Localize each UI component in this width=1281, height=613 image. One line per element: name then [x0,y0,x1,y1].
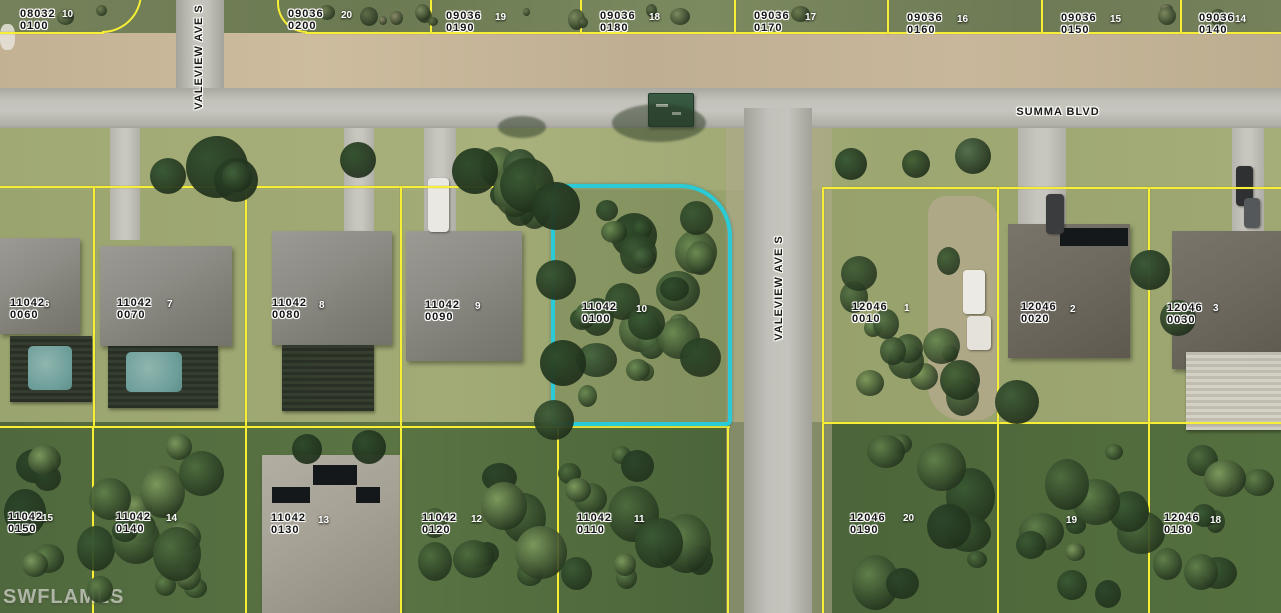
parcel-lot-number: 19 [495,13,506,23]
tree [967,551,987,568]
tree [923,328,960,364]
parcel-line [557,428,559,613]
street-label: SUMMA BLVD [1016,106,1099,118]
parcel-line [0,32,104,34]
tree [1057,570,1087,600]
tree [686,241,715,275]
tree [28,445,61,475]
house-roof [100,246,232,346]
parcel-lot-number: 15 [1110,15,1121,25]
vehicle-gray-car [1244,198,1260,228]
parcel-lot-number: 12 [471,515,482,525]
house-roof [1172,231,1281,369]
parcel-label: 11042 0130 [271,512,306,536]
parcel-label: 08032 0100 [20,8,56,32]
parcel-label: 11042 0150 [8,511,43,535]
parcel-lot-number: 8 [319,301,325,311]
parcel-line [400,428,402,613]
screened-lanai [282,345,374,411]
swimming-pool [28,346,72,390]
parcel-label: 12046 0010 [852,301,888,325]
parcel-line [245,428,247,613]
parcel-lot-number: 9 [475,302,481,312]
parcel-line [727,426,729,613]
tree [390,11,403,25]
tree [534,400,574,440]
tree [150,158,186,194]
parcel-line [822,187,824,613]
parcel-label: 11042 0090 [425,299,460,323]
tree [418,542,452,581]
parcel-lot-number: 20 [903,514,914,524]
tree [1065,543,1085,561]
tree [578,385,597,407]
tree [680,338,721,377]
parcel-line [1180,0,1182,33]
house-roof [406,231,522,361]
parcel-lot-number: 1 [904,304,910,314]
vehicle-white-truck [963,270,985,314]
tree [565,478,591,502]
parcel-lot-number: 2 [1070,305,1076,315]
tree [1105,444,1123,460]
parcel-label: 11042 0110 [577,512,612,536]
tree [153,527,201,581]
tree [626,359,650,381]
tree [1045,459,1089,510]
tree-shadow [498,116,546,138]
tree [621,450,654,482]
tree [841,256,877,291]
parcel-lot-number: 11 [634,515,645,525]
tree [96,5,107,16]
tree [222,162,252,192]
parcel-label: 09036 0190 [446,10,482,34]
parcel-lot-number: 18 [1210,516,1221,526]
parcel-label: 11042 0140 [116,511,151,535]
tree [340,142,376,178]
parcel-lot-number: 13 [318,516,329,526]
tree [87,576,113,603]
light-ground-patch [0,24,15,50]
aerial-map: SWFLAMLS VALEVIEW AVE SSUMMA BLVDVALEVIE… [0,0,1281,613]
tree [867,435,905,468]
parcel-label: 11042 0070 [117,297,152,321]
parcel-line [93,186,95,428]
tree [1158,7,1176,25]
parcel-line [400,186,402,428]
tree [880,337,906,365]
street-label: VALEVIEW AVE S [193,4,205,109]
tree [886,568,919,599]
tree [515,526,567,579]
parcel-label: 11042 0080 [272,297,307,321]
pool-screen-enclosure [1186,352,1281,430]
parcel-lot-number: 20 [341,11,352,21]
parcel-lot-number: 14 [166,514,177,524]
tree [614,553,636,576]
tree [523,8,530,16]
swimming-pool [126,352,182,392]
parcel-lot-number: 17 [805,13,816,23]
tree [856,370,884,396]
parcel-label: 12046 0180 [1164,512,1200,536]
parcel-label: 11042 0100 [582,301,617,325]
tree [1130,250,1170,290]
parcel-label: 09036 0150 [1061,12,1097,36]
roof-shadow [272,487,310,503]
parcel-lot-number: 15 [42,514,53,524]
parcel-line [887,0,889,33]
parcel-line [823,422,1281,424]
vehicle-white-car [967,316,991,350]
tree [532,182,580,230]
parcel-lot-number: 7 [167,300,173,310]
tree [561,557,592,590]
roof-shadow [1060,228,1128,246]
tree [937,247,960,275]
parcel-label: 09036 0200 [288,8,324,32]
tree [379,16,387,25]
roof-shadow [313,465,357,485]
tree [635,518,683,568]
tree [660,277,689,301]
tree [1095,580,1121,608]
tree [352,430,386,464]
tree [179,451,224,496]
tree [670,8,690,25]
tree [22,552,48,577]
driveway [110,128,140,240]
tree [1184,554,1218,590]
vehicle-dark-van [1046,194,1064,234]
parcel-label: 11042 0120 [422,512,457,536]
parcel-lot-number: 10 [62,10,73,20]
tree [77,526,115,571]
tree [1243,469,1274,496]
parcel-lot-number: 16 [957,15,968,25]
parcel-lot-number: 6 [44,300,50,310]
parcel-line [245,186,247,428]
tree [680,201,713,235]
house-roof [272,231,392,345]
tree [1153,548,1182,580]
parcel-lot-number: 3 [1213,304,1219,314]
tree [578,17,588,28]
parcel-label: 09036 0180 [600,10,636,34]
parcel-label: 09036 0170 [754,10,790,34]
tree [835,148,867,180]
tree [360,7,378,26]
tree [917,443,966,491]
parcel-line [823,187,1281,189]
tree [955,138,991,174]
tree [536,260,576,300]
tree [940,360,980,400]
parcel-label: 09036 0160 [907,12,943,36]
parcel-lot-number: 14 [1235,15,1246,25]
tree [540,340,586,386]
tree [452,148,498,194]
tree [1016,531,1046,559]
parcel-label: 12046 0020 [1021,301,1057,325]
tree [902,150,930,178]
parcel-line [1041,0,1043,33]
parcel-lot-number: 10 [636,305,647,315]
tree [1204,460,1246,497]
tree [927,504,971,549]
tree [995,380,1039,424]
tree [601,221,627,243]
tree-shadow [612,104,706,142]
tree [481,482,527,530]
tree [428,17,438,26]
parcel-label: 12046 0030 [1167,302,1203,326]
street-label: VALEVIEW AVE S [773,235,785,340]
parcel-line [0,426,730,428]
tree [453,540,494,578]
roof-shadow [356,487,380,503]
tree [596,200,618,221]
tree [631,247,656,268]
parcel-lot-number: 19 [1066,516,1077,526]
parcel-label: 12046 0190 [850,512,886,536]
parcel-label: 09036 0140 [1199,12,1235,36]
tree [292,434,322,464]
parcel-label: 11042 0060 [10,297,45,321]
parcel-lot-number: 18 [649,13,660,23]
road-valeview-south [744,108,812,613]
parcel-line [734,0,736,33]
